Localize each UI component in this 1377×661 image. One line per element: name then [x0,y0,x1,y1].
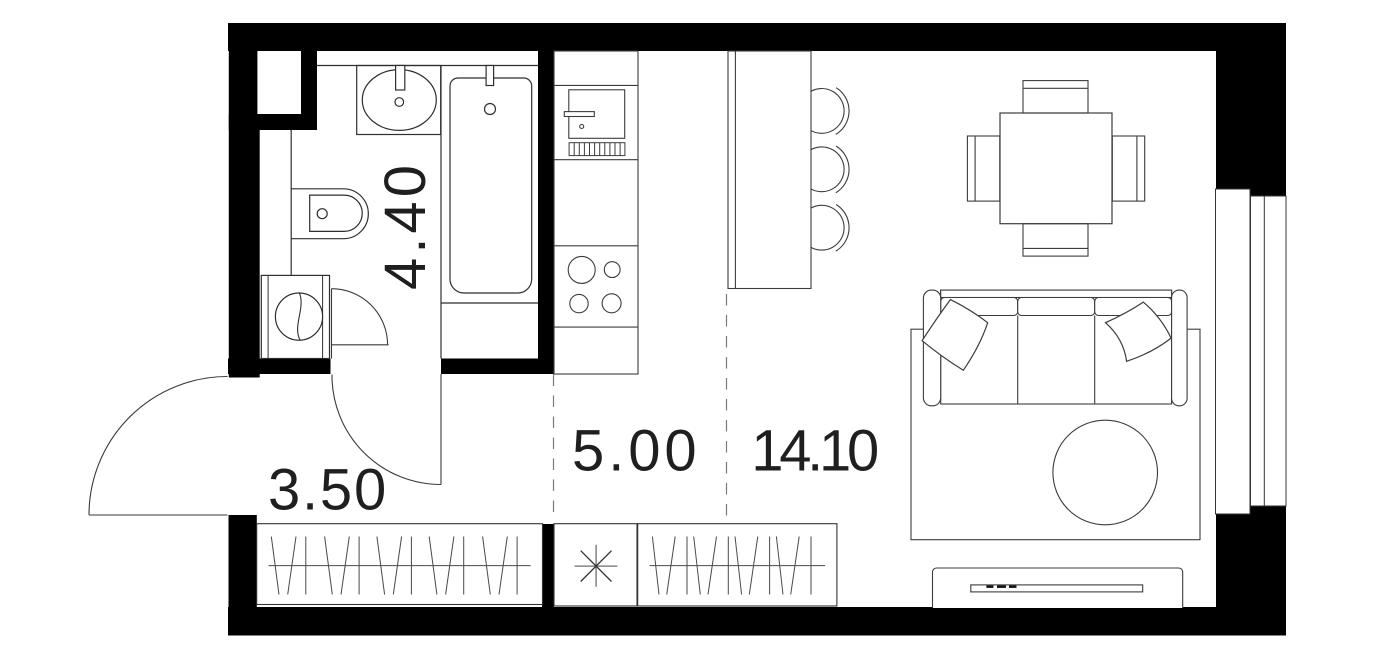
svg-text:4.40: 4.40 [373,161,438,290]
svg-text:14.10: 14.10 [751,419,877,484]
svg-text:3.50: 3.50 [268,458,388,523]
svg-text:5.00: 5.00 [572,419,701,484]
